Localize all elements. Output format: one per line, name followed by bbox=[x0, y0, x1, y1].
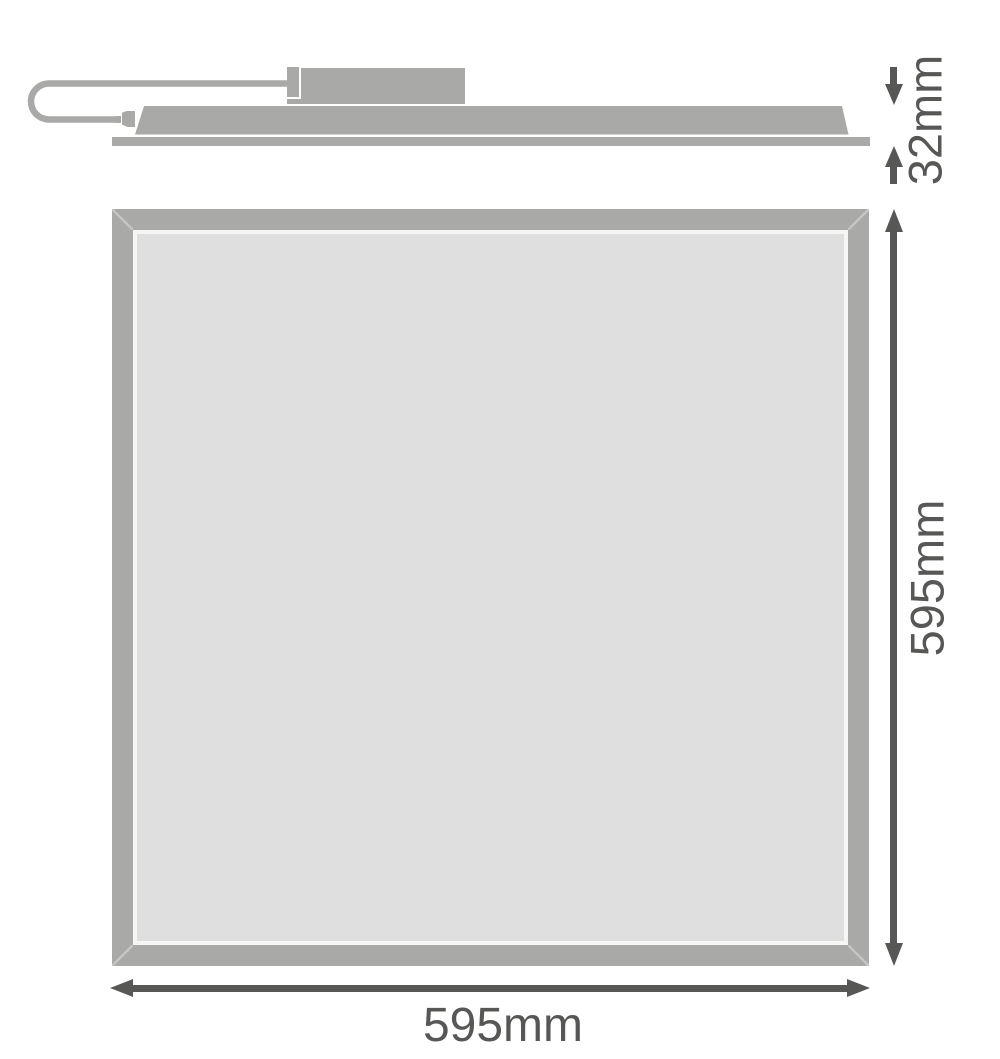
front-height-label: 595mm bbox=[904, 500, 951, 657]
horizontal-dim-arrow-left-icon bbox=[110, 979, 133, 997]
horizontal-dim-line bbox=[133, 985, 847, 992]
frame-mitre-top-left bbox=[112, 209, 133, 230]
horizontal-dim-arrow-right-icon bbox=[847, 979, 870, 997]
power-cable bbox=[0, 0, 300, 160]
front-width-label: 595mm bbox=[423, 1002, 583, 1050]
front-view-light-surface bbox=[133, 230, 848, 945]
side-height-label: 32mm bbox=[902, 55, 949, 186]
height-arrow-up-stem bbox=[890, 167, 897, 184]
height-arrow-down-stem bbox=[890, 67, 897, 84]
cable-plug-tip bbox=[116, 116, 121, 123]
driver-box bbox=[301, 68, 465, 104]
frame-mitre-top-right bbox=[848, 209, 869, 230]
vertical-dim-arrow-down-icon bbox=[885, 943, 903, 966]
driver-connector-block bbox=[287, 67, 299, 97]
front-view-panel-frame bbox=[112, 209, 869, 966]
vertical-dim-arrow-up-icon bbox=[885, 209, 903, 232]
cable-plug-connector bbox=[122, 111, 135, 128]
side-view-panel-face-flange bbox=[112, 137, 870, 146]
side-view-panel-body bbox=[135, 106, 849, 135]
frame-mitre-bottom-left bbox=[112, 945, 133, 966]
frame-mitre-bottom-right bbox=[848, 945, 869, 966]
vertical-dim-line bbox=[890, 231, 897, 943]
diagram-canvas: 32mm 595mm 595mm bbox=[0, 0, 1000, 1059]
